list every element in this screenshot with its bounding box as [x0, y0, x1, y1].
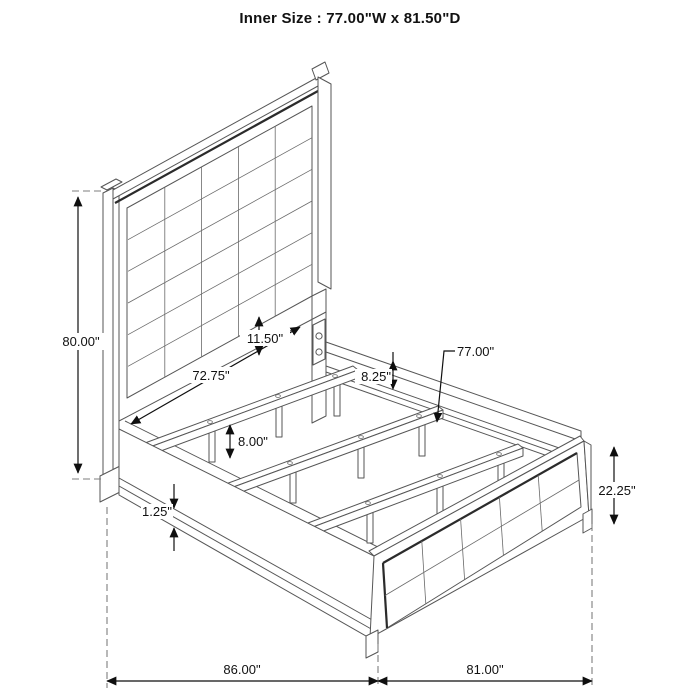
- dim-base-trim: 1.25": [142, 504, 172, 519]
- dim-headboard-height: 80.00": [62, 334, 100, 349]
- dim-rail-to-slat: 8.25": [361, 369, 391, 384]
- dim-overall-depth: 86.00": [223, 662, 261, 677]
- dim-overall-width: 81.00": [466, 662, 504, 677]
- dim-leg-height: 8.00": [238, 434, 268, 449]
- bed-line-drawing: 80.00" 72.75" 11.50" 8.25" 77.00" 8.00": [0, 0, 700, 700]
- headboard-left-post: [103, 188, 113, 482]
- headboard-right-post: [312, 289, 326, 423]
- dim-side-rail-height: 11.50": [247, 331, 284, 346]
- dim-slat-length: 77.00": [457, 344, 495, 359]
- dim-footboard-height: 22.25": [598, 483, 636, 498]
- dim-headboard-panel-width: 72.75": [192, 368, 230, 383]
- bed-dimension-diagram: Inner Size : 77.00"W x 81.50"D: [0, 0, 700, 700]
- near-side-rail: [119, 429, 376, 640]
